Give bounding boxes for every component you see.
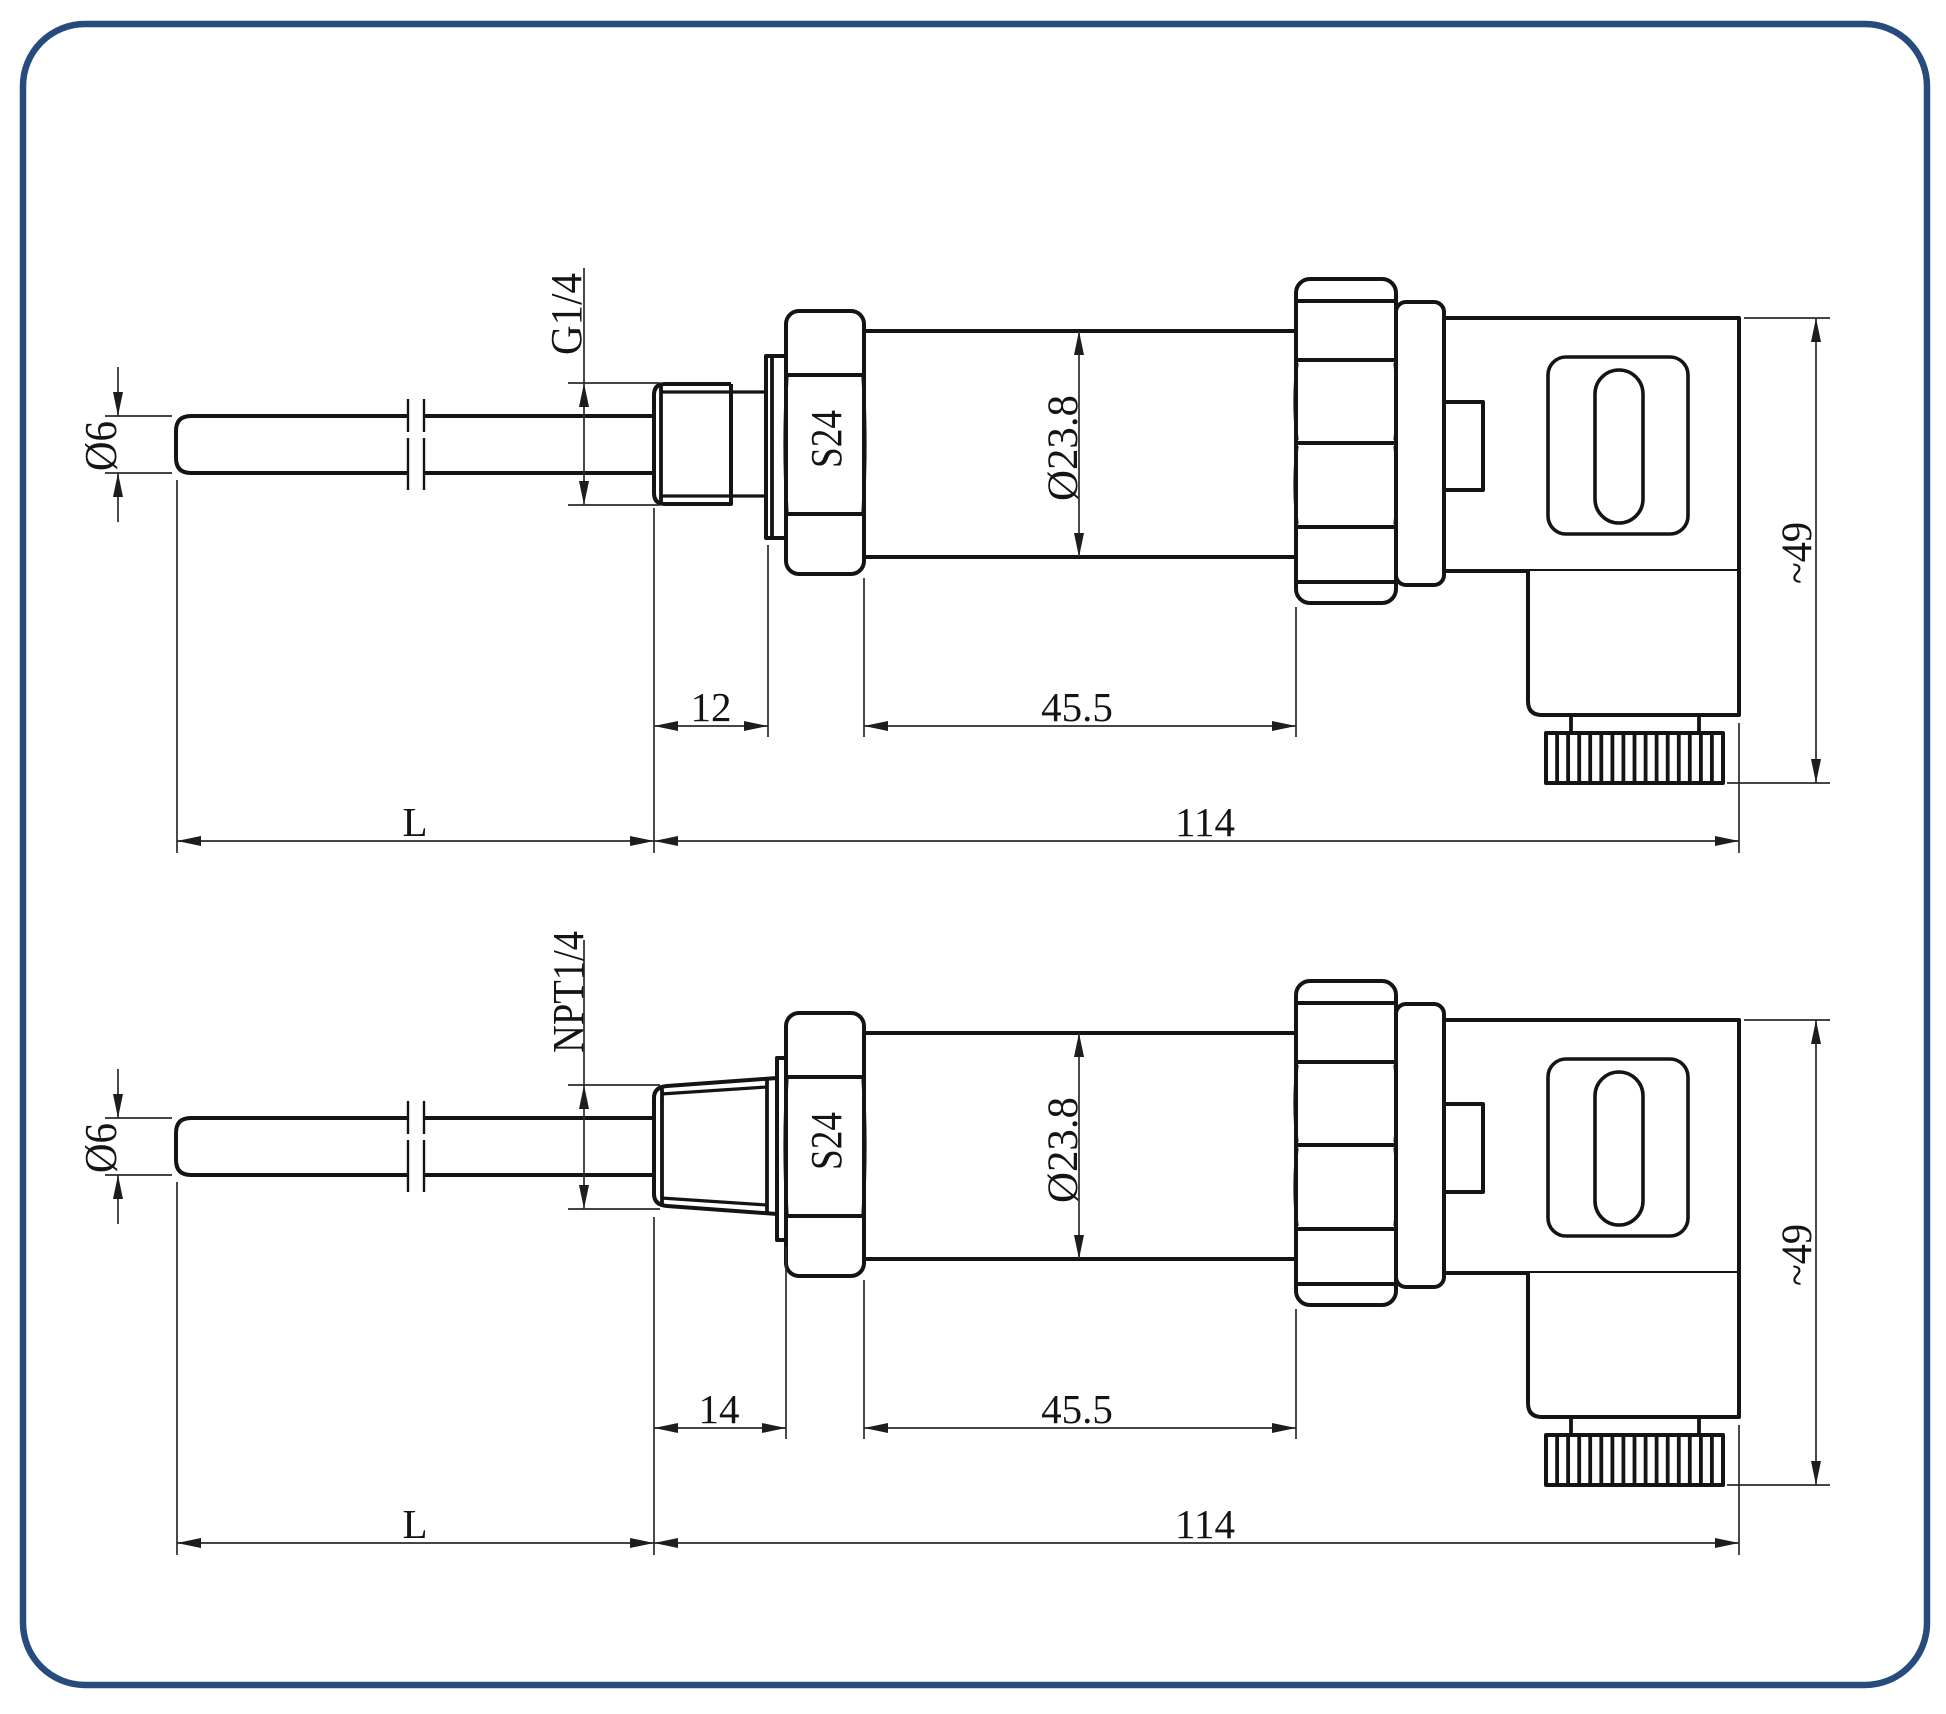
svg-text:12: 12	[691, 684, 732, 730]
svg-text:NPT1/4: NPT1/4	[544, 931, 593, 1053]
svg-text:Ø23.8: Ø23.8	[1040, 395, 1087, 501]
svg-text:114: 114	[1175, 799, 1235, 845]
svg-text:Ø6: Ø6	[76, 421, 126, 471]
svg-text:S24: S24	[802, 1112, 851, 1170]
svg-text:~49: ~49	[1774, 1224, 1821, 1286]
svg-text:45.5: 45.5	[1041, 684, 1113, 730]
svg-text:Ø23.8: Ø23.8	[1040, 1097, 1087, 1203]
svg-text:G1/4: G1/4	[542, 273, 591, 355]
svg-text:14: 14	[699, 1386, 740, 1432]
svg-text:45.5: 45.5	[1041, 1386, 1113, 1432]
svg-text:114: 114	[1175, 1501, 1235, 1547]
svg-text:~49: ~49	[1774, 522, 1821, 584]
svg-text:L: L	[402, 799, 427, 845]
svg-text:Ø6: Ø6	[76, 1123, 126, 1173]
svg-text:L: L	[402, 1501, 427, 1547]
svg-text:S24: S24	[802, 410, 851, 468]
